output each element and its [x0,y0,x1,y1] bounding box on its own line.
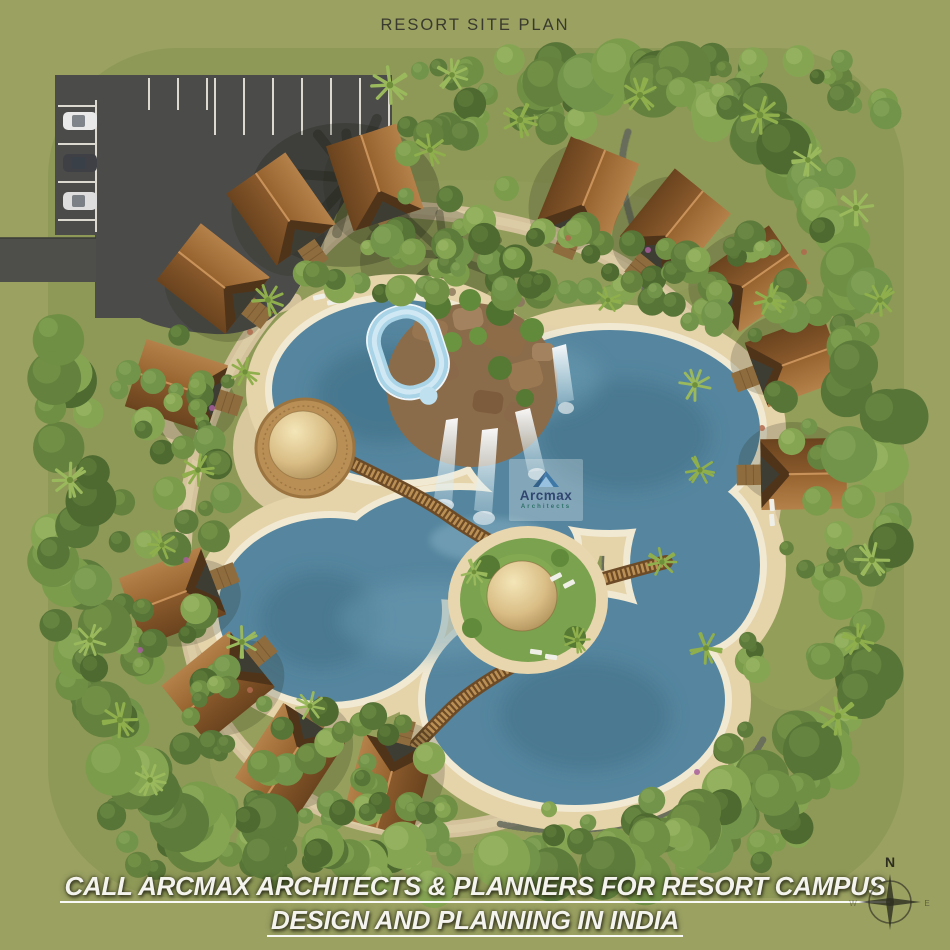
arcmax-logo-icon [533,471,559,487]
compass-west-label: W [849,899,857,908]
parked-car [63,112,97,130]
flower-bed [183,557,189,563]
flower-bed [759,425,765,431]
pavilion-island [448,526,608,674]
flower-bed [209,405,215,411]
entry-road [0,238,96,282]
compass-rose: N E W [845,850,937,946]
page-title: RESORT SITE PLAN [0,16,950,35]
flower-bed [694,769,700,775]
round-deck-pavilion [255,398,355,498]
resort-site-plan: RESORT SITE PLAN Arcmax Architects CALL … [0,0,950,950]
flower-bed [645,247,651,253]
watermark: Arcmax Architects [509,459,583,521]
watermark-subtitle: Architects [521,504,571,510]
watermark-brand: Arcmax [520,488,573,503]
sun-lounger [769,499,775,511]
flower-bed [137,647,143,653]
parked-car [63,192,97,210]
site-plan-rendering [0,0,950,950]
compass-east-label: E [924,899,929,908]
parked-car [63,154,97,172]
footer-caption: CALL ARCMAX ARCHITECTS & PLANNERS FOR RE… [0,872,950,940]
footer-line-1: CALL ARCMAX ARCHITECTS & PLANNERS FOR RE… [60,872,889,903]
footer-line-2: DESIGN AND PLANNING IN INDIA [267,906,683,937]
flower-bed [565,235,571,241]
flower-bed [247,329,253,335]
flower-bed [801,249,807,255]
compass-north-label: N [885,854,895,870]
flower-bed [247,687,253,693]
sun-lounger [769,514,775,526]
